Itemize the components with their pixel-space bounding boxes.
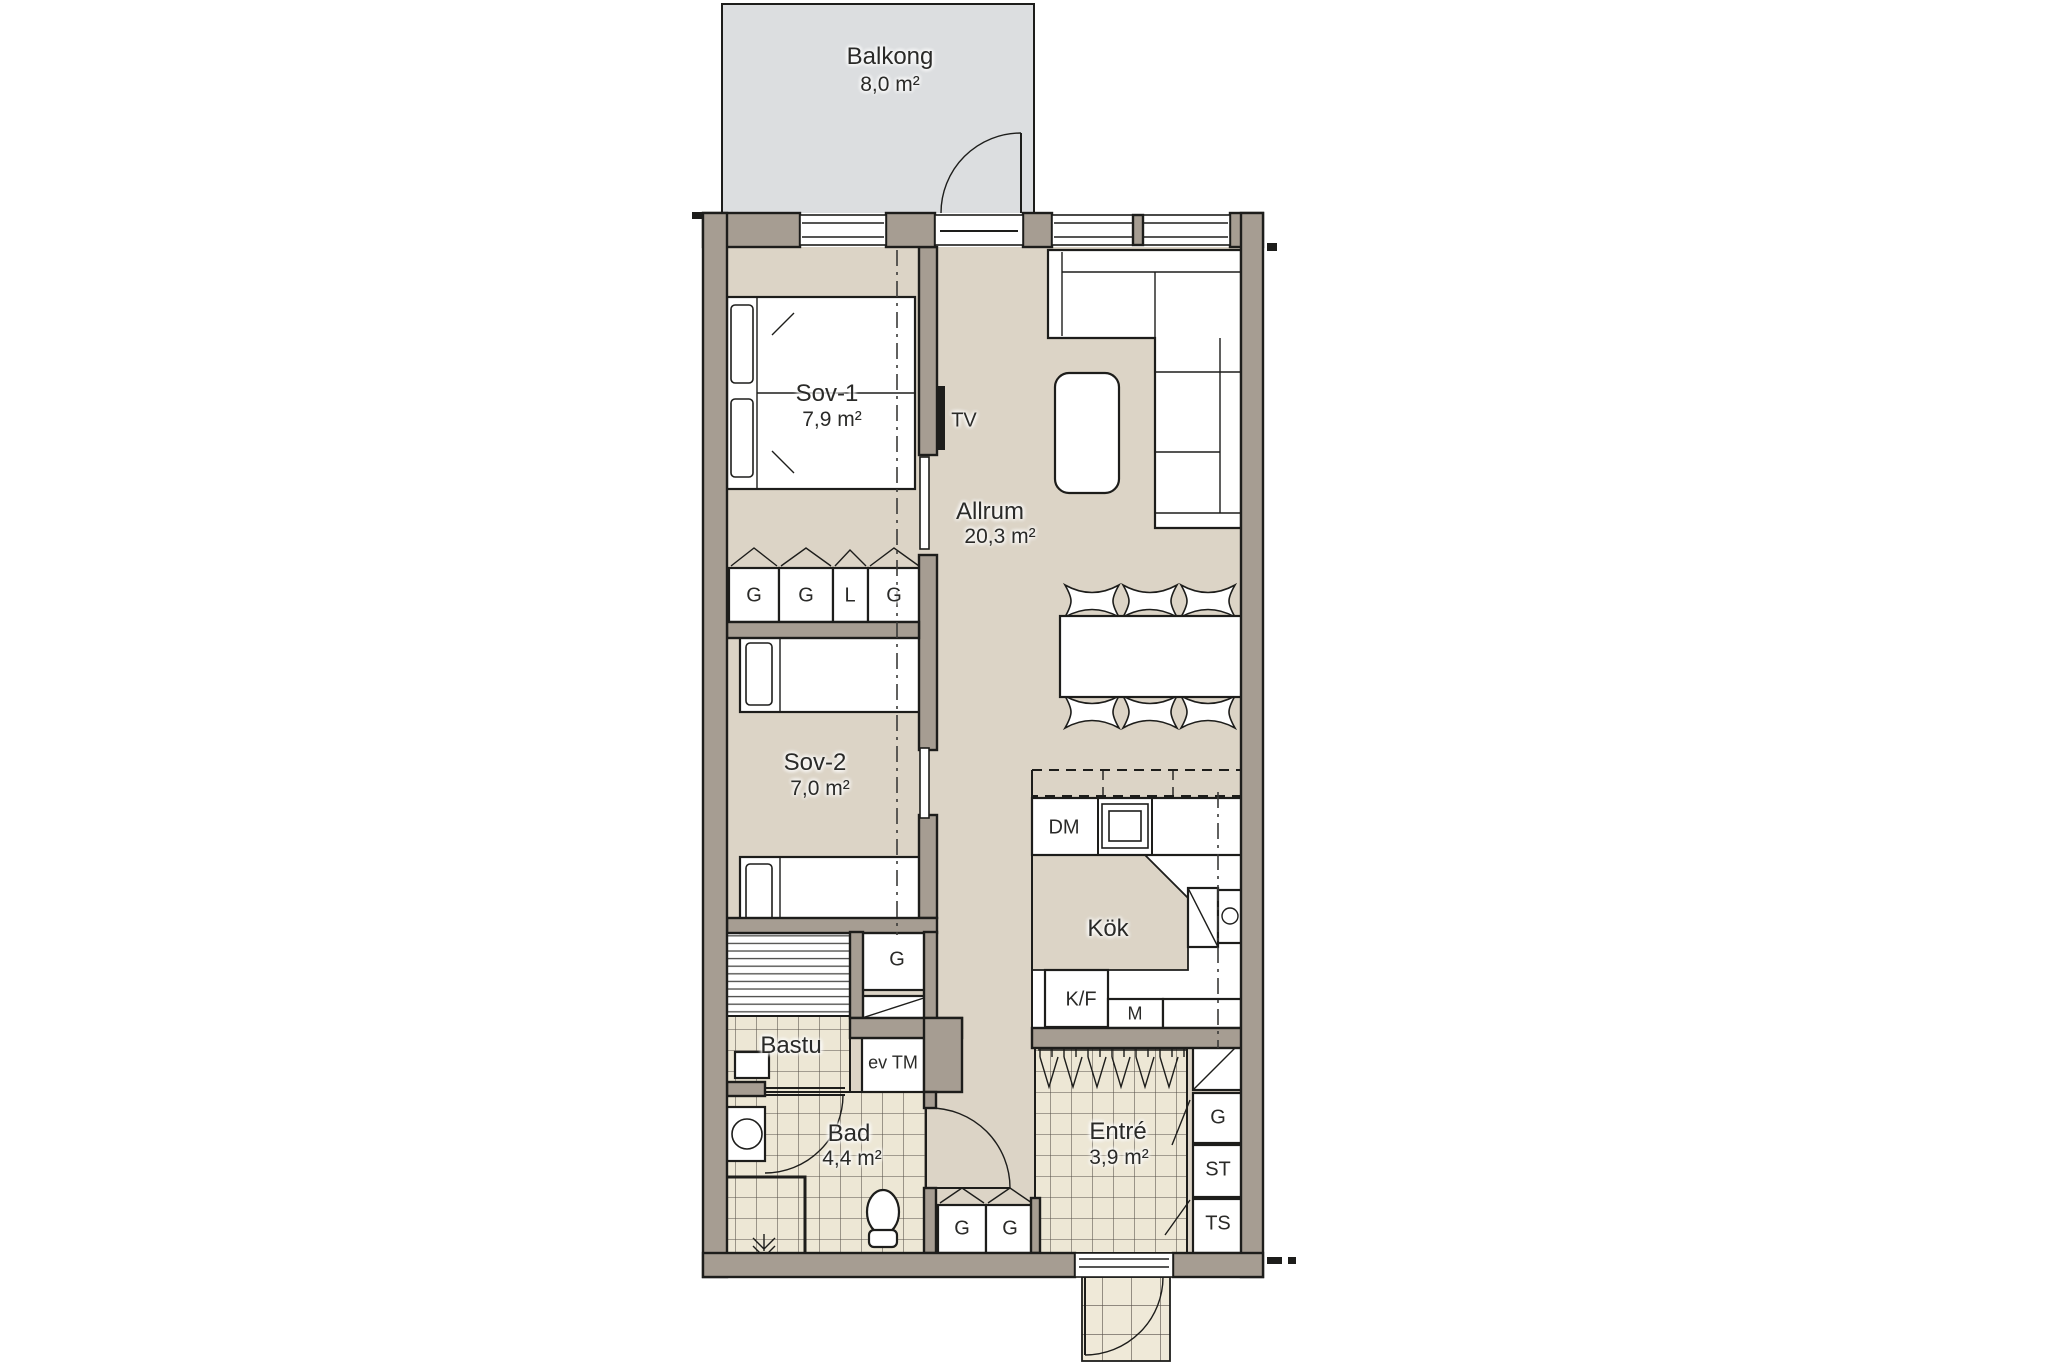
bed-single-sov2-top bbox=[740, 636, 925, 712]
fixture-label-dm: DM bbox=[1048, 817, 1079, 840]
room-label-sov1: Sov-1 bbox=[796, 380, 859, 408]
closet-label-hall-g1: G bbox=[954, 1218, 970, 1241]
window-sov1 bbox=[800, 215, 886, 245]
toilet bbox=[867, 1190, 899, 1247]
room-label-bastu: Bastu bbox=[760, 1032, 821, 1060]
balcony bbox=[722, 4, 1034, 213]
area-label-bad: 4,4 m² bbox=[822, 1147, 882, 1171]
entry-landing bbox=[1082, 1277, 1170, 1361]
room-label-bad: Bad bbox=[828, 1120, 871, 1148]
room-label-entre: Entré bbox=[1089, 1118, 1146, 1146]
floorplan-page: Balkong 8,0 m² Sov-1 7,9 m² TV Allrum 20… bbox=[0, 0, 2048, 1365]
closet-label-col-st: ST bbox=[1205, 1159, 1231, 1182]
area-label-sov2: 7,0 m² bbox=[790, 777, 850, 801]
room-label-allrum: Allrum bbox=[956, 498, 1024, 526]
sliding-door-sov2 bbox=[920, 748, 929, 818]
sauna-bench bbox=[727, 932, 850, 1016]
floorplan-drawing bbox=[0, 0, 2048, 1365]
coffee-table bbox=[1055, 373, 1119, 493]
area-label-sov1: 7,9 m² bbox=[802, 408, 862, 432]
fixture-label-evtm: ev TM bbox=[868, 1053, 918, 1074]
room-label-sov2: Sov-2 bbox=[784, 749, 847, 777]
closet-label-hall-g2: G bbox=[1002, 1218, 1018, 1241]
fixture-label-kf: K/F bbox=[1065, 989, 1096, 1012]
room-label-balkong: Balkong bbox=[847, 43, 934, 71]
fixture-label-tv: TV bbox=[951, 410, 977, 433]
tv-unit bbox=[937, 386, 945, 450]
closet-label-g3: G bbox=[886, 585, 902, 608]
area-label-allrum: 20,3 m² bbox=[964, 525, 1035, 549]
sliding-door-sov1 bbox=[920, 457, 929, 549]
closet-label-col-g: G bbox=[1210, 1107, 1226, 1130]
counter-bottom bbox=[1163, 999, 1241, 1028]
fixture-label-m: M bbox=[1128, 1004, 1143, 1025]
window-allrum bbox=[1052, 215, 1230, 245]
closet-label-g1: G bbox=[746, 585, 762, 608]
area-label-balkong: 8,0 m² bbox=[860, 73, 920, 97]
closet-label-col-ts: TS bbox=[1205, 1213, 1231, 1236]
closet-label-g2: G bbox=[798, 585, 814, 608]
room-label-kok: Kök bbox=[1087, 915, 1128, 943]
area-label-entre: 3,9 m² bbox=[1089, 1146, 1149, 1170]
closet-label-l: L bbox=[844, 585, 855, 608]
dining-table bbox=[1060, 616, 1242, 697]
dining-set bbox=[1060, 585, 1242, 728]
closet-label-g-sov2: G bbox=[889, 949, 905, 972]
